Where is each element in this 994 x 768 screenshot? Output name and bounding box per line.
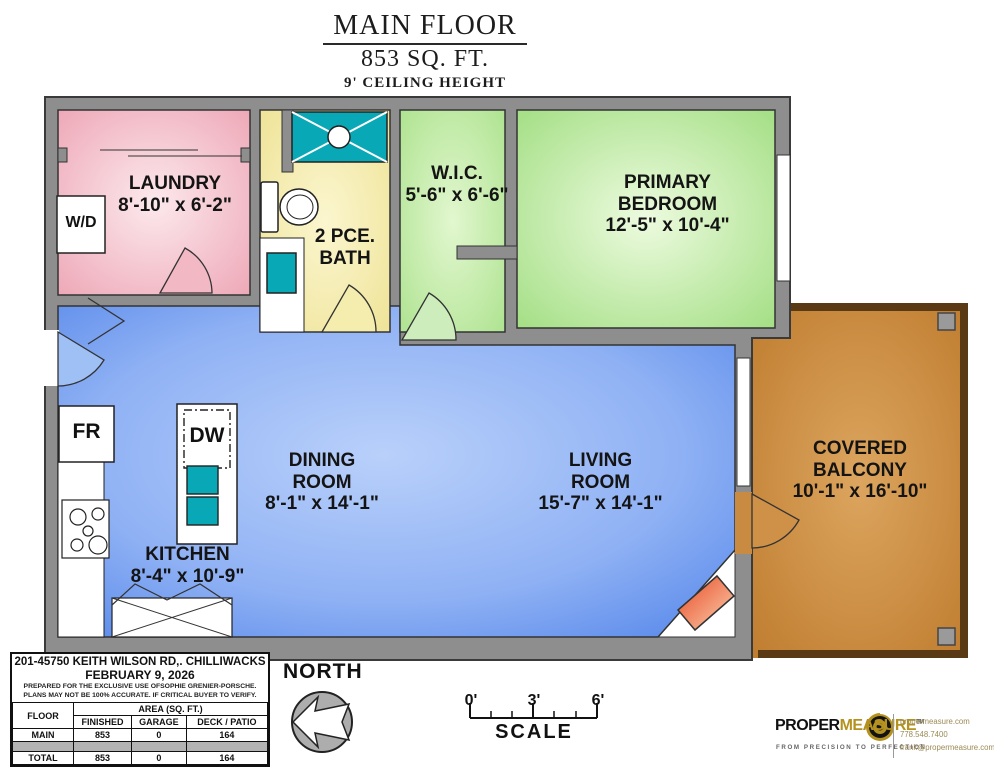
shower-icon <box>292 112 387 162</box>
north-label: NORTH <box>283 660 373 684</box>
disclaimer-line2: PLANS MAY NOT BE 100% ACCURATE. IF CRITI… <box>12 691 268 700</box>
bath-sink-icon <box>260 238 304 332</box>
kitchen-label: KITCHEN8'-4" x 10'-9" <box>95 544 280 587</box>
col-floor: FLOOR <box>13 703 74 729</box>
dining-room-label: DININGROOM 8'-1" x 14'-1" <box>238 450 406 515</box>
plan-date: FEBRUARY 9, 2026 <box>12 668 268 682</box>
brand-divider <box>893 714 894 758</box>
scale-tick-6: 6' <box>583 692 613 710</box>
brand-contact: propermeasure.com 778.548.7400 frank@pro… <box>900 716 994 755</box>
disclaimer-line1: PREPARED FOR THE EXCLUSIVE USE OFSOPHIE … <box>12 682 268 691</box>
wic-floor <box>400 110 505 332</box>
brand-website: propermeasure.com <box>900 716 994 729</box>
bedroom-label: PRIMARYBEDROOM 12'-5" x 10'-4" <box>565 172 770 237</box>
table-total-row: TOTAL 853 0 164 <box>13 752 268 765</box>
table-spacer-row <box>13 742 268 752</box>
north-arrow-icon <box>292 692 352 752</box>
brand-email: frank@propermeasure.com <box>900 742 994 755</box>
brand-tagline: FROM PRECISION TO PERFECTION <box>776 744 888 751</box>
island-sink-icon <box>187 466 218 494</box>
info-box: 201-45750 KEITH WILSON RD,. CHILLIWACKS … <box>10 652 270 767</box>
propermeasure-logo: PROPERMEASURETM <box>775 717 905 735</box>
col-garage: GARAGE <box>132 716 187 729</box>
area-table: FLOOR AREA (SQ. FT.) FINISHED GARAGE DEC… <box>12 702 268 765</box>
washer-dryer-label: W/D <box>57 214 105 232</box>
living-room-label: LIVINGROOM 15'-7" x 14'-1" <box>508 450 693 515</box>
bath-label: 2 PCE.BATH <box>300 226 390 269</box>
col-area: AREA (SQ. FT.) <box>74 703 268 716</box>
scale-label: SCALE <box>478 721 590 744</box>
floor-plan-page: MAIN FLOOR 853 SQ. FT. 9' CEILING HEIGHT <box>0 0 994 768</box>
laundry-label: LAUNDRY8'-10" x 6'-2" <box>75 173 275 216</box>
bedroom-window <box>777 155 790 281</box>
scale-tick-3: 3' <box>519 692 549 710</box>
col-finished: FINISHED <box>74 716 132 729</box>
brand-name-black: PROPER <box>775 717 840 734</box>
wic-label: W.I.C.5'-6" x 6'-6" <box>393 163 521 206</box>
balcony-label: COVEREDBALCONY 10'-1" x 16'-10" <box>765 438 955 503</box>
address: 201-45750 KEITH WILSON RD,. CHILLIWACKS <box>12 654 268 668</box>
scale-tick-0: 0' <box>456 692 486 710</box>
living-window <box>737 358 750 486</box>
dishwasher-label: DW <box>184 424 230 448</box>
brand-phone: 778.548.7400 <box>900 729 994 742</box>
table-row: MAIN 853 0 164 <box>13 729 268 742</box>
fridge-label: FR <box>59 420 114 444</box>
col-deck: DECK / PATIO <box>186 716 267 729</box>
